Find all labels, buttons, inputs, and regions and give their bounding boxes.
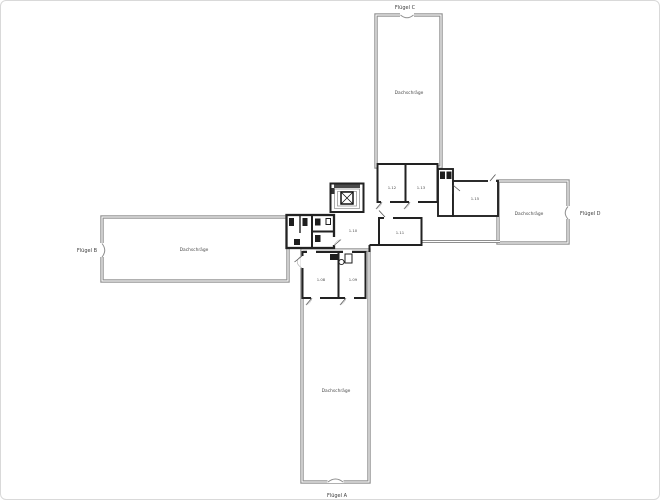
wing-d-title: Flügel D [580, 211, 601, 217]
wing-b-room-label: Dachschräge [180, 247, 209, 253]
toilet-icon [447, 172, 452, 180]
door-gap [311, 297, 320, 301]
window-notch-icon [564, 206, 571, 219]
wing-a-top-rooms [303, 251, 366, 301]
door-gap [409, 200, 418, 204]
floor-plan-drawing: Dachschräge Flügel C Dachschräge Flügel … [1, 1, 659, 499]
toilet-icon [303, 218, 308, 226]
sink-icon [294, 239, 300, 245]
stairwell-block [331, 184, 364, 213]
room-number-right: 1.15 [471, 196, 480, 201]
window-notch-icon [400, 12, 414, 19]
wing-c: Dachschräge [376, 12, 441, 168]
room-number-center: 1.11 [396, 230, 405, 235]
wing-a-room-label: Dachschräge [322, 388, 351, 394]
floor-plan-canvas: Dachschräge Flügel C Dachschräge Flügel … [0, 0, 660, 500]
core-top-rooms [378, 164, 438, 202]
door-gap [345, 297, 354, 301]
wing-a-title: Flügel A [327, 493, 348, 499]
toilet-icon [440, 172, 445, 180]
wing-b-title: Flügel B [77, 248, 98, 254]
door-gap [343, 251, 352, 255]
wing-b: Dachschräge [99, 217, 289, 281]
room-number-top-right: 1.13 [417, 185, 426, 190]
room-number-lower-left: 1.08 [317, 277, 326, 282]
room-number-lobby: 1.10 [349, 228, 358, 233]
wing-c-title: Flügel C [395, 5, 416, 11]
window-notch-icon [328, 475, 344, 483]
door-gap [307, 251, 316, 255]
door-gap [384, 217, 393, 221]
toilet-icon [289, 218, 294, 226]
room-number-top-left: 1.12 [388, 185, 397, 190]
wing-d: Dachschräge [498, 181, 571, 243]
core-link-walls [370, 245, 380, 252]
wing-c-room-label: Dachschräge [395, 90, 424, 96]
window-notch-icon [99, 243, 106, 257]
door-gap [333, 237, 336, 245]
strip-door [295, 256, 305, 268]
wing-d-room-label: Dachschräge [515, 211, 544, 217]
door-gap [381, 200, 390, 204]
door-gap [488, 180, 496, 184]
wc-cluster [287, 215, 336, 248]
toilet-icon [315, 219, 321, 226]
shaft-detail [332, 188, 335, 194]
core-vestibule [438, 169, 455, 216]
toilet-icon [315, 235, 321, 242]
room-number-lower-right: 1.09 [349, 277, 358, 282]
elevator-icon [341, 192, 353, 204]
stair-hatch [334, 185, 360, 189]
